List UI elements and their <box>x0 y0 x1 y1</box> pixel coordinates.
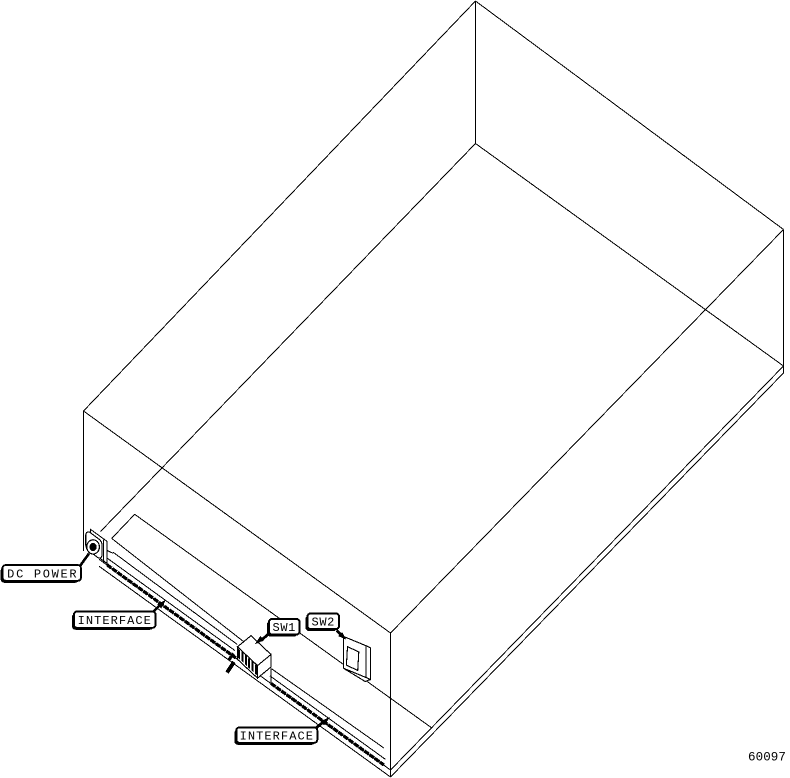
svg-text:DC POWER: DC POWER <box>7 567 78 581</box>
svg-text:INTERFACE: INTERFACE <box>240 730 314 744</box>
svg-text:SW2: SW2 <box>312 616 335 630</box>
svg-text:SW1: SW1 <box>273 621 296 635</box>
svg-text:INTERFACE: INTERFACE <box>78 614 152 628</box>
svg-text:60097: 60097 <box>748 751 786 765</box>
